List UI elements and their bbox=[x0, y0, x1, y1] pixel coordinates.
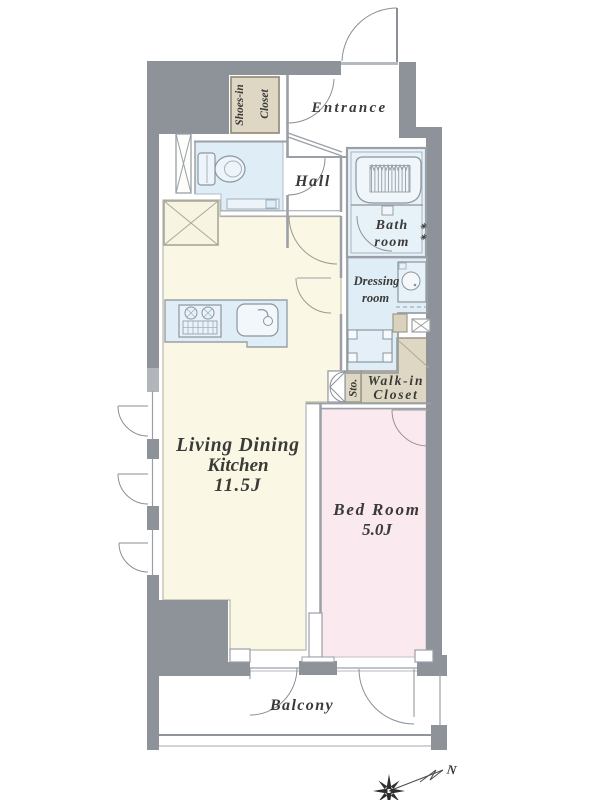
svg-text:Hall: Hall bbox=[294, 173, 331, 190]
svg-text:Shoes-in: Shoes-in bbox=[234, 84, 246, 126]
svg-text:Walk-in: Walk-in bbox=[368, 373, 425, 388]
svg-text:Entrance: Entrance bbox=[311, 100, 388, 116]
svg-text:Closet: Closet bbox=[259, 89, 271, 119]
svg-text:Bath: Bath bbox=[375, 218, 409, 233]
svg-text:Bed Room: Bed Room bbox=[332, 500, 421, 519]
svg-text:Sto.: Sto. bbox=[348, 379, 360, 397]
svg-text:Dressing: Dressing bbox=[353, 274, 400, 288]
svg-text:Closet: Closet bbox=[373, 387, 418, 402]
svg-text:Kitchen: Kitchen bbox=[206, 455, 268, 476]
svg-text:Living Dining: Living Dining bbox=[175, 435, 300, 456]
svg-text:room: room bbox=[362, 291, 389, 305]
svg-text:11.5J: 11.5J bbox=[214, 475, 262, 496]
svg-text:room: room bbox=[374, 235, 409, 250]
svg-text:Balcony: Balcony bbox=[269, 697, 334, 714]
svg-text:5.0J: 5.0J bbox=[362, 520, 392, 539]
